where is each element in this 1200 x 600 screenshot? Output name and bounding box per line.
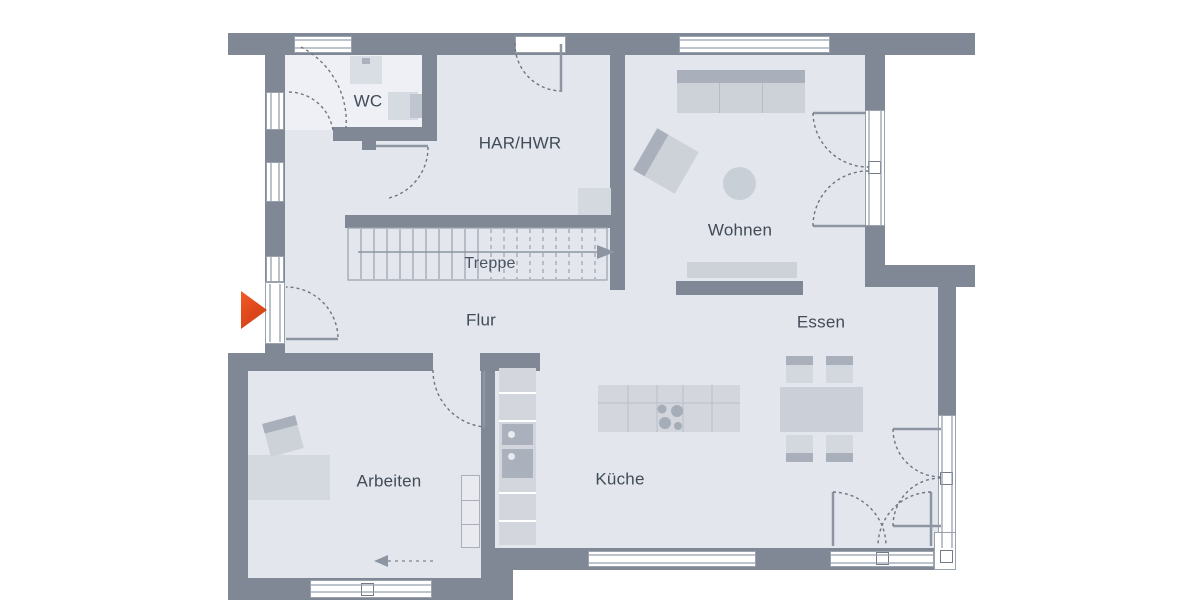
window-wohnen-top <box>679 36 830 53</box>
cabinet-gap <box>499 392 536 394</box>
dining-chair <box>786 435 813 462</box>
window-wc-left <box>266 92 284 130</box>
wall-stairs-top <box>345 215 625 228</box>
desk <box>248 455 330 500</box>
wall-wohnen-essen <box>676 281 803 295</box>
dining-chair <box>826 356 853 383</box>
wall-left-lower <box>228 353 248 600</box>
window-entry-sidelight <box>266 256 284 282</box>
coffee-table <box>723 167 756 200</box>
dining-chair <box>786 356 813 383</box>
dining-chair <box>826 435 853 462</box>
sofa-cushion-divider <box>762 83 763 113</box>
wall-flur-bottom-left <box>228 353 433 371</box>
room-label-arbeiten: Arbeiten <box>357 473 422 490</box>
toilet-tank <box>410 94 422 118</box>
sofa-back <box>677 70 805 83</box>
window-wc-top <box>294 36 352 53</box>
oven-knob <box>508 453 515 460</box>
room-label-wc: WC <box>354 93 383 110</box>
built-in-oven <box>502 449 533 478</box>
wall-har-wohnen-divider <box>610 45 625 290</box>
arbeiten-shelf <box>461 475 480 548</box>
window-kueche-bottom <box>588 551 756 567</box>
wall-door-hinge-stub <box>362 134 376 150</box>
sofa-cushion-divider <box>719 83 720 113</box>
cabinet-gap <box>499 492 536 494</box>
room-label-treppe: Treppe <box>464 256 515 272</box>
room-label-kueche: Küche <box>595 471 644 488</box>
built-in-oven <box>502 424 533 445</box>
handle-corner-glazing <box>940 550 953 563</box>
sofa-seat <box>677 83 805 113</box>
wall-wc-right <box>422 45 437 140</box>
room-label-har-hwr: HAR/HWR <box>479 135 562 152</box>
wall-wc-bottom <box>333 127 437 141</box>
room-label-wohnen: Wohnen <box>708 222 772 239</box>
handle-french-door-essen-right <box>940 472 953 485</box>
washbasin-faucet <box>362 58 370 64</box>
kitchen-island <box>598 385 740 432</box>
oven-knob <box>508 431 515 438</box>
wall-arbeiten-kueche-divider <box>481 357 495 578</box>
arbeiten-shelf-divider <box>461 524 480 525</box>
handle-window-arbeiten <box>361 583 374 596</box>
window-flur-left <box>266 162 284 202</box>
arbeiten-shelf-divider <box>461 500 480 501</box>
dining-table <box>780 387 863 432</box>
entrance-arrow <box>241 291 267 329</box>
floor-plan: WC HAR/HWR Treppe Flur Wohnen Essen Arbe… <box>0 0 1200 600</box>
door-main-entrance <box>265 282 285 344</box>
cabinet-gap <box>499 420 536 422</box>
handle-french-door-wohnen <box>868 161 881 174</box>
room-label-essen: Essen <box>797 314 845 331</box>
door-har-side-entrance <box>515 36 566 53</box>
har-appliance <box>578 188 611 215</box>
room-label-flur: Flur <box>466 312 496 329</box>
cabinet-gap <box>499 520 536 522</box>
handle-french-door-essen-bottom <box>876 552 889 565</box>
lowboard <box>687 262 797 278</box>
